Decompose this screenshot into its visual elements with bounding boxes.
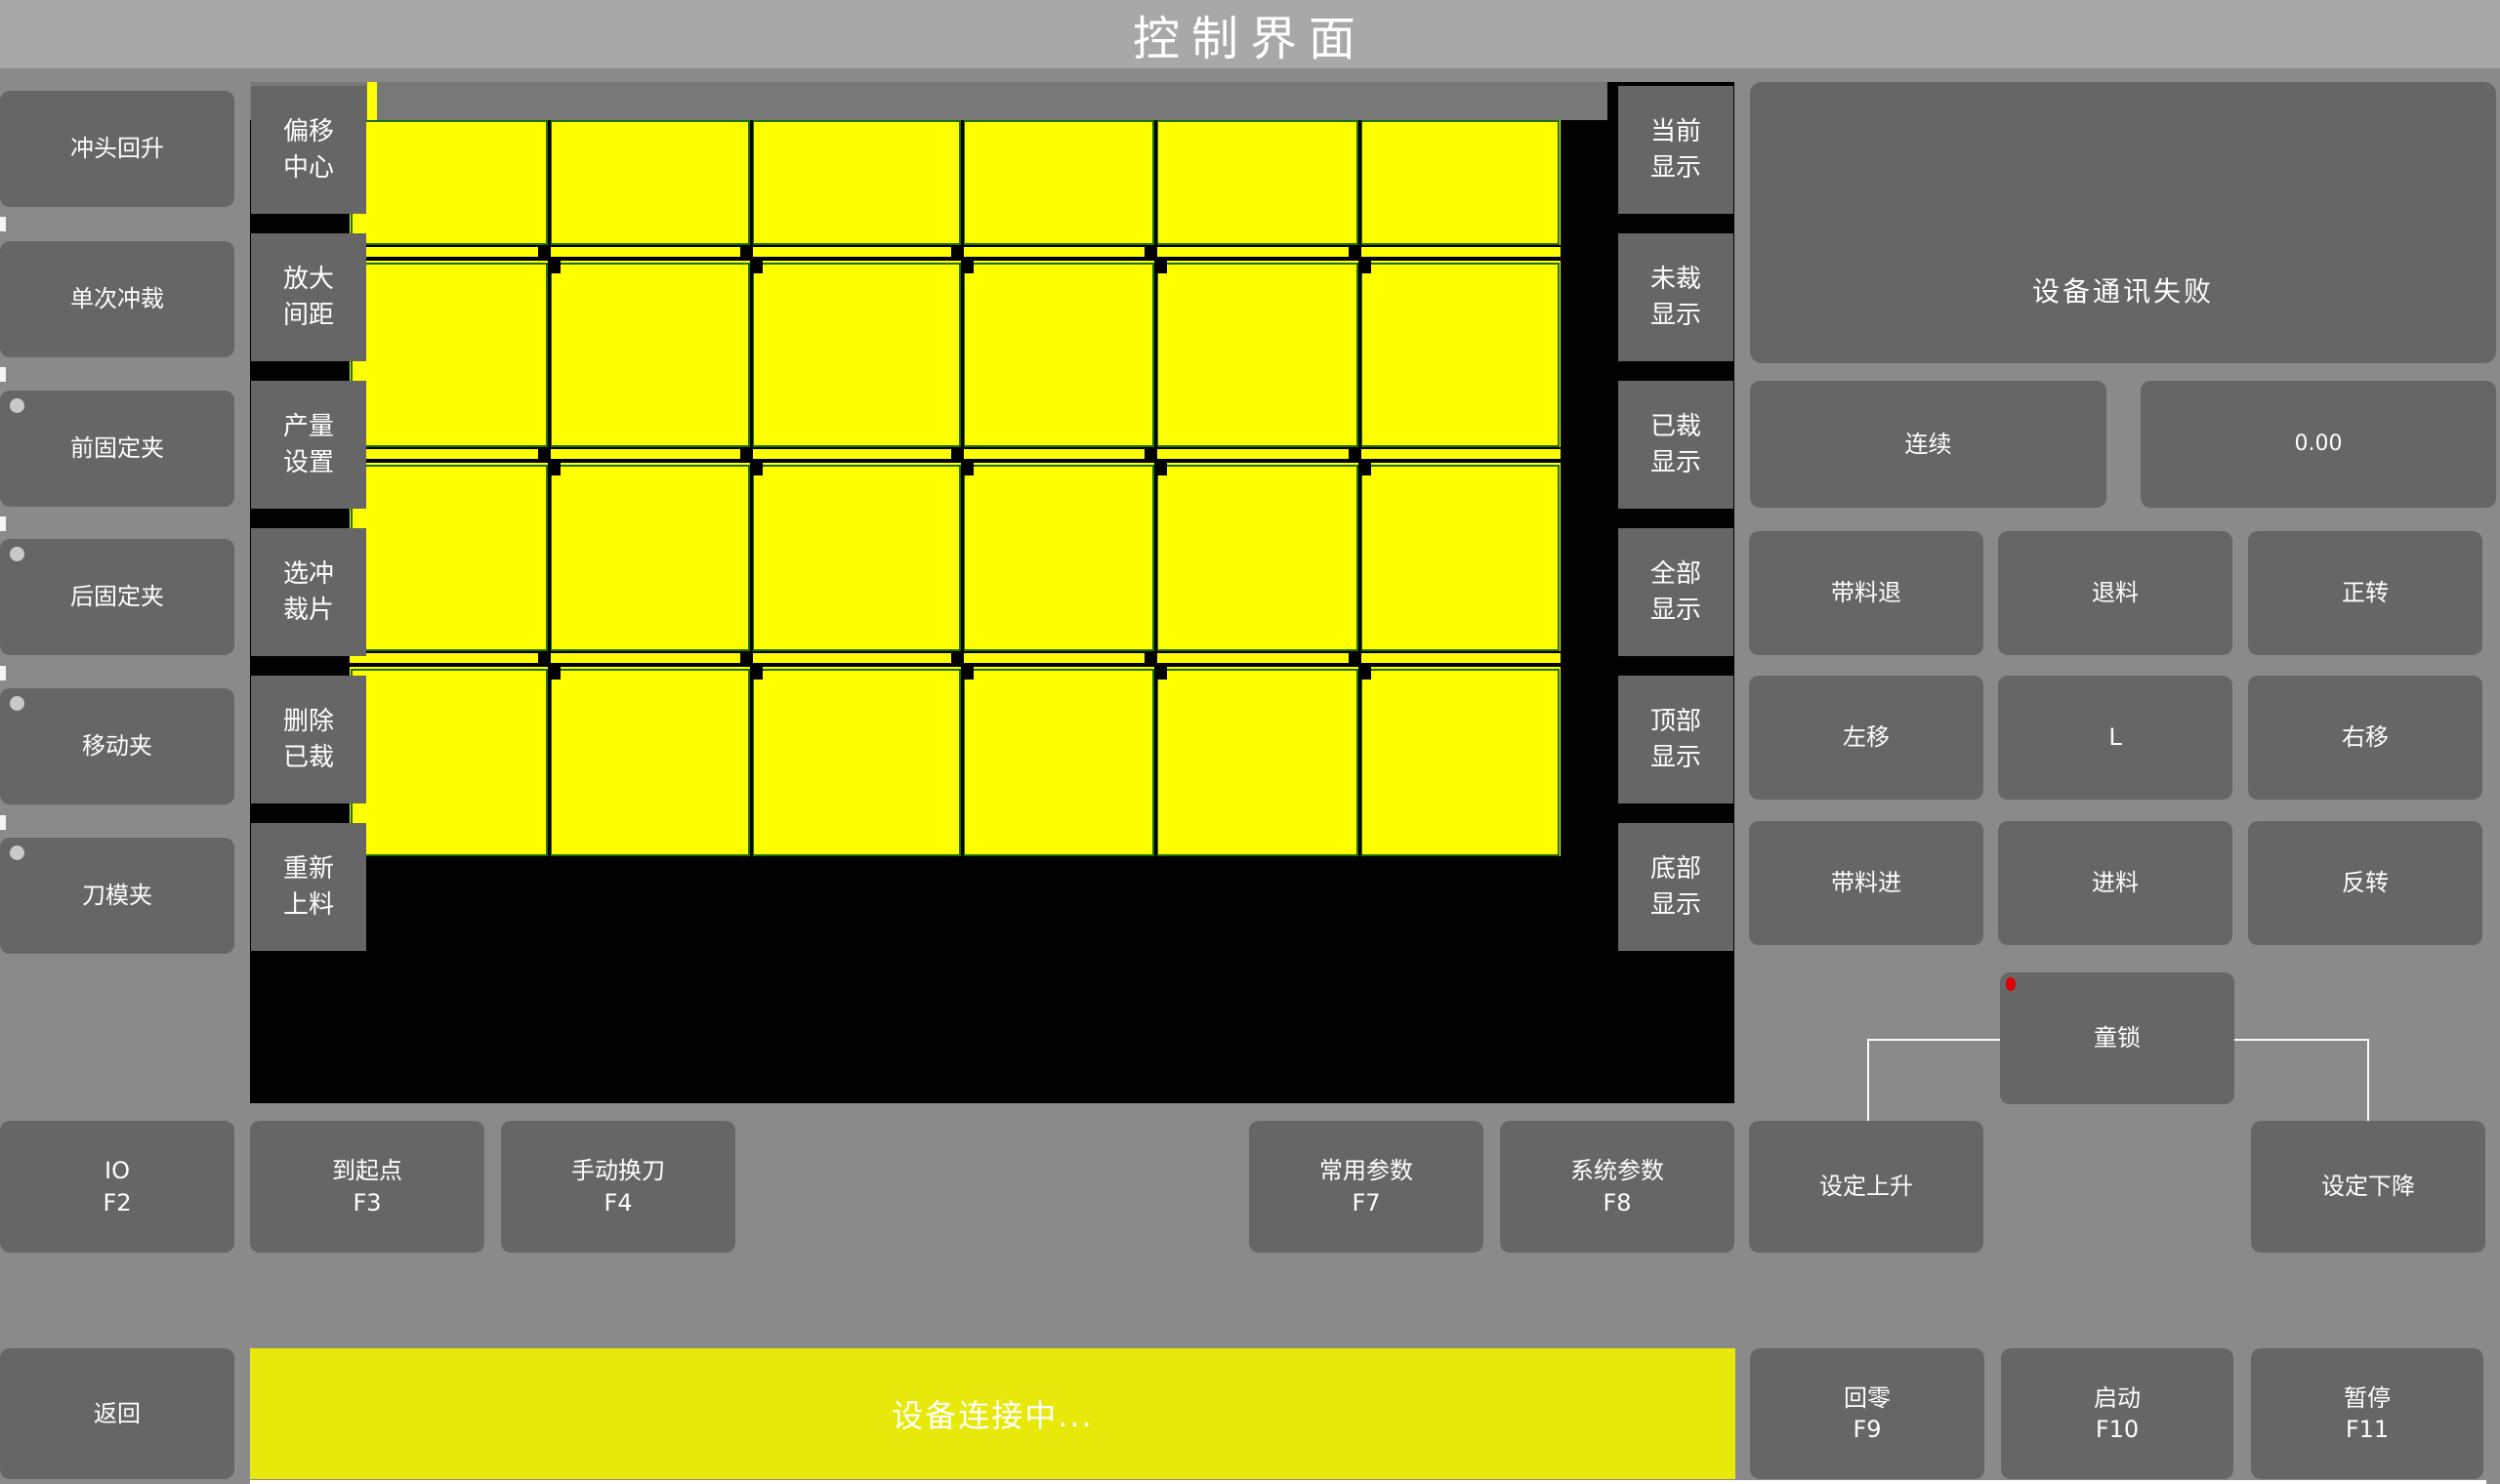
cut-line: [548, 120, 551, 856]
piece-cell: [1156, 669, 1358, 856]
cut-tick: [951, 449, 961, 459]
alarm-dot: [2006, 977, 2016, 991]
cut-tick: [753, 463, 763, 475]
cut-line: [1154, 120, 1157, 856]
piece-cell: [550, 465, 750, 651]
show-bottom-button[interactable]: 底部显示: [1618, 823, 1733, 951]
cut-tick: [753, 261, 763, 273]
punch-raise-button[interactable]: 冲头回升: [0, 91, 234, 207]
cut-tick: [740, 449, 750, 459]
piece-cell: [963, 669, 1154, 856]
cut-tick: [1349, 247, 1358, 257]
cut-tick: [551, 261, 561, 273]
cut-tick: [1361, 463, 1371, 475]
to-origin-f3-button[interactable]: 到起点F3: [250, 1121, 484, 1253]
cut-tick: [964, 667, 974, 680]
strip-back-button[interactable]: 带料退: [1749, 531, 1983, 655]
bottom-strip: [250, 1480, 2486, 1484]
cut-tick: [538, 449, 548, 459]
device-status-panel: 设备通讯失败: [1750, 82, 2496, 363]
piece-cell: [1156, 465, 1358, 651]
piece-cell: [351, 465, 548, 651]
common-params-f7-button[interactable]: 常用参数F7: [1249, 1121, 1483, 1253]
cut-tick: [551, 463, 561, 475]
piece-cell: [752, 263, 961, 447]
yield-setting-button[interactable]: 产量设置: [251, 381, 366, 509]
piece-cell: [550, 263, 750, 447]
edge-mark: [0, 666, 6, 680]
cut-tick: [951, 653, 961, 663]
page-title: 控制界面: [1133, 0, 1367, 68]
show-uncut-button[interactable]: 未裁显示: [1618, 233, 1733, 361]
show-top-button[interactable]: 顶部显示: [1618, 676, 1733, 804]
single-punch-button[interactable]: 单次冲裁: [0, 241, 234, 357]
cut-tick: [1145, 653, 1154, 663]
reload-material-button[interactable]: 重新上料: [251, 823, 366, 951]
cut-line: [1358, 120, 1361, 856]
cut-tick: [551, 667, 561, 680]
piece-cell: [351, 669, 548, 856]
set-lower-button[interactable]: 设定下降: [2251, 1121, 2485, 1253]
cut-tick: [1145, 247, 1154, 257]
cut-tick: [1157, 261, 1167, 273]
show-cut-button[interactable]: 已裁显示: [1618, 381, 1733, 509]
child-lock-button[interactable]: 童锁: [2000, 972, 2234, 1104]
front-clamp-button[interactable]: 前固定夹: [0, 391, 234, 507]
piece-cell: [1156, 120, 1358, 245]
cut-tick: [538, 247, 548, 257]
piece-cell: [1360, 120, 1560, 245]
piece-cell: [550, 669, 750, 856]
cut-line: [350, 459, 1561, 463]
show-all-button[interactable]: 全部显示: [1618, 528, 1733, 656]
retract-button[interactable]: 退料: [1998, 531, 2232, 655]
piece-cell: [1360, 465, 1560, 651]
connection-status-text: 设备连接中...: [892, 1391, 1094, 1436]
move-left-button[interactable]: 左移: [1749, 676, 1983, 800]
piece-cell: [550, 120, 750, 245]
piece-cell: [963, 263, 1154, 447]
piece-cell: [1156, 263, 1358, 447]
cut-tick: [1361, 261, 1371, 273]
edge-mark: [0, 217, 6, 231]
counter-display: 0.00: [2141, 381, 2496, 508]
start-f10-button[interactable]: 启动F10: [2001, 1348, 2233, 1479]
piece-cell: [351, 120, 548, 245]
offset-center-button[interactable]: 偏移中心: [251, 86, 366, 214]
l-button[interactable]: L: [1998, 676, 2232, 800]
pieces-grid[interactable]: [350, 120, 1561, 856]
strip-feed-button[interactable]: 带料进: [1749, 821, 1983, 945]
moving-clamp-button[interactable]: 移动夹: [0, 688, 234, 804]
title-bar: 控制界面: [0, 0, 2500, 68]
piece-cell: [1360, 669, 1560, 856]
reverse-rotate-button[interactable]: 反转: [2248, 821, 2482, 945]
indicator-dot: [10, 696, 24, 711]
piece-cell: [963, 120, 1154, 245]
piece-cell: [351, 263, 548, 447]
wire-right: [2367, 1039, 2369, 1121]
cut-tick: [753, 667, 763, 680]
delete-cut-button[interactable]: 删除已裁: [251, 676, 366, 804]
indicator-dot: [10, 398, 24, 413]
forward-rotate-button[interactable]: 正转: [2248, 531, 2482, 655]
io-f2-button[interactable]: IOF2: [0, 1121, 234, 1253]
feed-button[interactable]: 进料: [1998, 821, 2232, 945]
cut-tick: [1349, 653, 1358, 663]
cut-tick: [740, 653, 750, 663]
cut-tick: [964, 261, 974, 273]
cut-tick: [538, 653, 548, 663]
mode-continuous-button[interactable]: 连续: [1750, 381, 2106, 508]
piece-cell: [752, 120, 961, 245]
cut-line: [350, 663, 1561, 667]
cut-tick: [1145, 449, 1154, 459]
cut-tick: [1157, 463, 1167, 475]
enlarge-spacing-button[interactable]: 放大间距: [251, 233, 366, 361]
cut-tick: [1157, 667, 1167, 680]
canvas-origin-mark: [367, 82, 377, 120]
set-rise-button[interactable]: 设定上升: [1749, 1121, 1983, 1253]
die-clamp-button[interactable]: 刀模夹: [0, 838, 234, 954]
manual-toolchange-f4-button[interactable]: 手动换刀F4: [501, 1121, 735, 1253]
piece-cell: [752, 669, 961, 856]
select-piece-button[interactable]: 选冲裁片: [251, 528, 366, 656]
cut-tick: [740, 247, 750, 257]
move-right-button[interactable]: 右移: [2248, 676, 2482, 800]
wire-left: [1867, 1039, 1869, 1121]
canvas-end-mark: [1607, 82, 1617, 120]
system-params-f8-button[interactable]: 系统参数F8: [1500, 1121, 1734, 1253]
piece-cell: [963, 465, 1154, 651]
cut-line: [961, 120, 964, 856]
back-button[interactable]: 返回: [0, 1348, 234, 1479]
piece-cell: [1360, 263, 1560, 447]
cut-line: [750, 120, 753, 856]
home-f9-button[interactable]: 回零F9: [1750, 1348, 1984, 1479]
cut-tick: [1361, 667, 1371, 680]
pause-f11-button[interactable]: 暂停F11: [2251, 1348, 2483, 1479]
piece-cell: [752, 465, 961, 651]
show-current-button[interactable]: 当前显示: [1618, 86, 1733, 214]
cut-tick: [964, 463, 974, 475]
edge-mark: [0, 516, 6, 531]
cut-tick: [951, 247, 961, 257]
edge-mark: [0, 815, 6, 830]
device-status-message: 设备通讯失败: [2032, 270, 2214, 309]
cut-line: [350, 257, 1561, 261]
connection-status-bar: 设备连接中...: [250, 1348, 1735, 1479]
rear-clamp-button[interactable]: 后固定夹: [0, 539, 234, 655]
cut-tick: [1349, 449, 1358, 459]
indicator-dot: [10, 547, 24, 561]
edge-mark: [0, 367, 6, 382]
indicator-dot: [10, 845, 24, 860]
canvas-top-band: [250, 82, 1607, 120]
